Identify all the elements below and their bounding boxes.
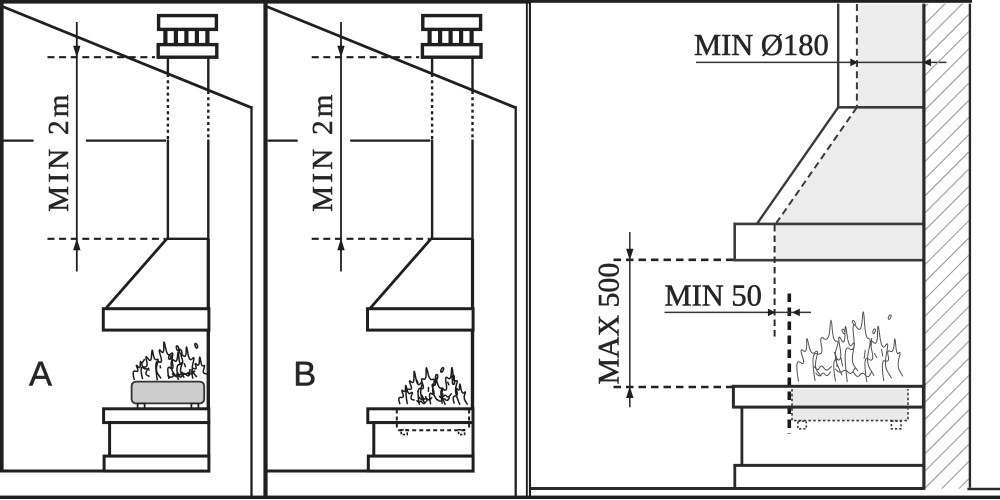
svg-text:MAX 500: MAX 500 xyxy=(593,263,626,385)
svg-text:MIN 2m: MIN 2m xyxy=(307,91,339,212)
svg-text:A: A xyxy=(29,356,52,394)
svg-text:MIN 2m: MIN 2m xyxy=(43,91,75,212)
svg-text:B: B xyxy=(293,356,316,394)
svg-text:MIN 50: MIN 50 xyxy=(665,278,762,312)
svg-text:MIN Ø180: MIN Ø180 xyxy=(694,28,829,62)
